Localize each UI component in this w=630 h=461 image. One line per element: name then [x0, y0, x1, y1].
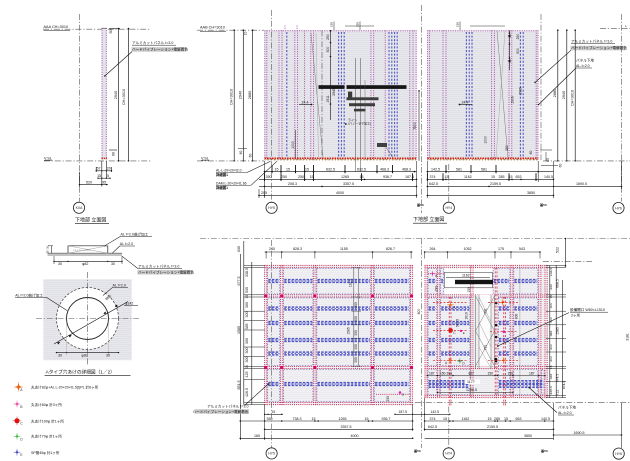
svg-text:300: 300 [549, 356, 553, 362]
svg-text:φ142: φ142 [125, 301, 133, 305]
svg-text:HY5: HY5 [268, 452, 275, 456]
svg-text:192.5: 192.5 [349, 279, 353, 287]
svg-text:285: 285 [494, 417, 500, 421]
svg-text:828.3: 828.3 [293, 247, 302, 251]
svg-text:AL t=2.0: AL t=2.0 [120, 242, 133, 246]
svg-text:HY4: HY4 [445, 452, 452, 456]
svg-text:187.5: 187.5 [405, 175, 414, 179]
svg-text:V.SL: V.SL [44, 156, 52, 160]
svg-text:アルミカットパネル t=3.0: アルミカットパネル t=3.0 [132, 40, 173, 45]
svg-text:AAA CH=3010: AAA CH=3010 [44, 25, 69, 29]
svg-text:15: 15 [488, 417, 492, 421]
svg-text:15: 15 [443, 417, 447, 421]
svg-text:1155: 1155 [340, 247, 348, 251]
svg-text:874.5: 874.5 [562, 381, 566, 390]
svg-text:300: 300 [245, 348, 249, 354]
svg-text:30: 30 [58, 354, 62, 358]
svg-text:1162: 1162 [462, 417, 470, 421]
svg-text:AL-L-20×20×t2.0: AL-L-20×20×t2.0 [216, 169, 242, 173]
svg-text:150: 150 [435, 286, 439, 292]
svg-text:アルミカットパネル t=3.0: アルミカットパネル t=3.0 [207, 403, 248, 408]
svg-text:791: 791 [484, 308, 488, 314]
svg-text:335: 335 [549, 374, 553, 380]
svg-text:30: 30 [111, 262, 115, 266]
svg-text:15: 15 [504, 417, 508, 421]
svg-text:385: 385 [549, 331, 553, 337]
svg-text:7600: 7600 [413, 122, 417, 130]
svg-text:50: 50 [109, 30, 113, 34]
svg-text:1208.5: 1208.5 [466, 388, 477, 392]
svg-text:DAM L-20×20×t1.66: DAM L-20×20×t1.66 [216, 181, 247, 185]
svg-text:4000: 4000 [351, 434, 359, 438]
svg-text:187: 187 [429, 371, 435, 375]
svg-text:パネル下地: パネル下地 [558, 405, 576, 410]
svg-text:468.3: 468.3 [380, 167, 389, 171]
svg-text:250: 250 [386, 396, 390, 402]
svg-text:335: 335 [549, 284, 553, 290]
svg-text:20: 20 [46, 250, 50, 254]
svg-text:187.5: 187.5 [399, 410, 408, 414]
svg-text:1690.5: 1690.5 [576, 182, 587, 186]
svg-text:1265: 1265 [341, 175, 349, 179]
svg-text:2936: 2936 [518, 87, 522, 95]
svg-text:3357.5: 3357.5 [341, 425, 352, 429]
svg-text:15: 15 [245, 295, 249, 299]
svg-text:653: 653 [516, 175, 522, 179]
svg-text:15: 15 [272, 410, 276, 414]
svg-text:CH=3010: CH=3010 [122, 89, 126, 105]
svg-text:642.5: 642.5 [428, 425, 437, 429]
svg-text:2940: 2940 [562, 91, 566, 99]
svg-text:140.5: 140.5 [544, 175, 553, 179]
svg-text:丸あけ82φ+AL L-20×20×t1.5(t)PL 計6: 丸あけ82φ+AL L-20×20×t1.5(t)PL 計6ヶ所 [31, 384, 99, 389]
svg-text:165: 165 [254, 434, 260, 438]
svg-text:30: 30 [58, 262, 62, 266]
svg-text:1610: 1610 [464, 312, 468, 320]
svg-text:5: 5 [107, 174, 109, 178]
svg-text:374: 374 [430, 417, 436, 421]
svg-text:15: 15 [365, 417, 369, 421]
svg-text:632.5: 632.5 [357, 167, 366, 171]
svg-text:Aタイプ穴あけの詳細図（1／2）: Aタイプ穴あけの詳細図（1／2） [46, 368, 115, 375]
svg-text:15: 15 [245, 365, 249, 369]
svg-text:15: 15 [445, 175, 449, 179]
svg-text:KXA: KXA [76, 206, 84, 210]
svg-text:380: 380 [505, 145, 509, 151]
svg-text:208.3: 208.3 [288, 182, 297, 186]
svg-text:ハードバイブレーション+電解着色: ハードバイブレーション+電解着色 [132, 47, 188, 52]
svg-text:642.5: 642.5 [429, 182, 438, 186]
svg-text:2880: 2880 [553, 89, 557, 97]
svg-text:374: 374 [430, 175, 436, 179]
svg-text:712: 712 [555, 390, 559, 396]
svg-text:150: 150 [440, 371, 446, 375]
svg-text:基53: 基53 [416, 202, 424, 207]
svg-text:2880: 2880 [248, 91, 252, 99]
svg-text:205: 205 [261, 191, 267, 195]
svg-text:HY6: HY6 [615, 206, 622, 210]
svg-text:653: 653 [516, 417, 522, 421]
svg-text:基53: 基53 [413, 448, 421, 453]
svg-text:3850: 3850 [524, 434, 532, 438]
svg-text:AAB CH=3010: AAB CH=3010 [200, 26, 225, 30]
svg-text:15: 15 [549, 365, 553, 369]
svg-text:300: 300 [354, 330, 358, 336]
svg-text:150: 150 [508, 371, 514, 375]
svg-text:385: 385 [245, 324, 249, 330]
svg-text:基53: 基53 [539, 202, 547, 207]
svg-text:2940: 2940 [114, 91, 118, 99]
svg-text:250: 250 [281, 175, 287, 179]
svg-text:60: 60 [529, 151, 533, 155]
svg-text:285: 285 [499, 175, 505, 179]
svg-text:ハードバイブレーション+電解着色: ハードバイブレーション+電解着色 [193, 409, 249, 414]
svg-text:2945: 2945 [332, 88, 336, 96]
svg-text:2159.5: 2159.5 [490, 182, 501, 186]
svg-text:150: 150 [488, 371, 494, 375]
svg-text:15: 15 [491, 175, 495, 179]
svg-text:アルミカットパネル t=3.0: アルミカットパネル t=3.0 [138, 264, 179, 269]
svg-text:60: 60 [546, 158, 550, 162]
svg-text:142.5: 142.5 [431, 410, 440, 414]
svg-text:設備開口 W60×L1510: 設備開口 W60×L1510 [570, 307, 605, 312]
svg-text:300: 300 [549, 303, 553, 309]
svg-text:15: 15 [549, 295, 553, 299]
svg-text:851.5: 851.5 [237, 381, 241, 390]
svg-text:1585: 1585 [347, 327, 351, 335]
svg-text:468.3: 468.3 [402, 167, 411, 171]
svg-text:15: 15 [97, 174, 101, 178]
svg-text:60: 60 [112, 152, 116, 156]
svg-text:2159.5: 2159.5 [487, 425, 498, 429]
svg-text:下地部 立面図: 下地部 立面図 [75, 217, 106, 224]
svg-text:詳細図1: 詳細図1 [216, 172, 228, 177]
svg-text:HY4: HY4 [445, 206, 452, 210]
svg-text:3850: 3850 [527, 191, 535, 195]
svg-text:632.5: 632.5 [326, 167, 335, 171]
svg-text:(パノーラマ加工): (パノーラマ加工) [348, 121, 371, 126]
svg-text:CH=3010: CH=3010 [230, 89, 234, 105]
svg-text:133.5: 133.5 [549, 268, 553, 277]
svg-text:詳細図1: 詳細図1 [216, 185, 228, 190]
svg-text:1052: 1052 [464, 247, 472, 251]
svg-text:150: 150 [456, 22, 460, 27]
svg-text:15: 15 [360, 175, 364, 179]
svg-text:1162: 1162 [462, 274, 470, 278]
svg-text:2ヶ所: 2ヶ所 [571, 313, 581, 318]
svg-text:1177: 1177 [467, 380, 475, 384]
svg-text:150: 150 [467, 287, 471, 293]
svg-text:250: 250 [326, 34, 330, 40]
svg-text:581: 581 [481, 167, 487, 171]
svg-text:4000: 4000 [336, 191, 344, 195]
svg-text:581: 581 [456, 167, 462, 171]
svg-text:187: 187 [529, 371, 535, 375]
svg-text:200: 200 [447, 371, 453, 375]
svg-text:15: 15 [310, 175, 314, 179]
svg-text:543: 543 [519, 247, 525, 251]
svg-text:800: 800 [417, 309, 421, 315]
svg-text:24.4: 24.4 [462, 101, 469, 105]
svg-text:1000: 1000 [291, 141, 295, 149]
svg-text:175: 175 [498, 247, 504, 251]
svg-text:791: 791 [484, 345, 488, 351]
svg-text:300: 300 [549, 344, 553, 350]
svg-text:60: 60 [239, 151, 243, 155]
svg-text:V.SL: V.SL [201, 156, 209, 160]
svg-text:1911: 1911 [326, 95, 330, 102]
svg-text:738.3: 738.3 [293, 417, 302, 421]
svg-text:500: 500 [516, 48, 520, 54]
svg-text:AL t=2.0: AL t=2.0 [113, 283, 126, 287]
svg-text:15: 15 [312, 417, 316, 421]
svg-text:300: 300 [245, 302, 249, 308]
svg-text:425: 425 [245, 372, 249, 378]
svg-text:300: 300 [354, 344, 358, 350]
svg-text:AL-t=2.0: AL-t=2.0 [558, 411, 572, 415]
svg-text:300: 300 [354, 357, 358, 363]
svg-text:250: 250 [298, 175, 304, 179]
svg-text:1906: 1906 [510, 96, 514, 104]
svg-text:500: 500 [326, 47, 330, 53]
svg-text:1690.5: 1690.5 [574, 431, 585, 435]
svg-text:140.5: 140.5 [541, 417, 550, 421]
svg-text:390: 390 [266, 175, 272, 179]
svg-text:パネル下地: パネル下地 [576, 57, 594, 62]
svg-text:300: 300 [245, 312, 249, 318]
svg-text:2940: 2940 [239, 91, 243, 99]
svg-text:AL t=2.0曲げ加工: AL t=2.0曲げ加工 [121, 231, 149, 236]
svg-text:1585: 1585 [555, 327, 559, 335]
svg-text:535: 535 [245, 287, 249, 293]
svg-text:丸あけ100φ 計1ヶ所: 丸あけ100φ 計1ヶ所 [31, 418, 64, 423]
svg-text:150: 150 [330, 22, 334, 27]
svg-text:10: 10 [244, 32, 248, 36]
svg-text:339.5: 339.5 [549, 386, 553, 395]
svg-text:264: 264 [430, 247, 436, 251]
svg-text:B: B [402, 393, 404, 397]
svg-text:1585: 1585 [237, 326, 241, 334]
svg-text:φ82: φ82 [82, 354, 88, 358]
svg-text:936.7: 936.7 [383, 175, 392, 179]
svg-text:HY6: HY6 [615, 452, 622, 456]
svg-text:E: E [463, 331, 465, 335]
svg-text:800: 800 [514, 314, 518, 320]
svg-text:SP管45φ 計1ヶ所: SP管45φ 計1ヶ所 [31, 450, 60, 455]
svg-text:300: 300 [245, 357, 249, 363]
svg-text:240: 240 [269, 247, 275, 251]
svg-text:1000: 1000 [483, 136, 487, 144]
svg-text:142.5: 142.5 [431, 167, 440, 171]
svg-text:アルミカットパネル t=3.0: アルミカットパネル t=3.0 [571, 39, 612, 44]
svg-text:3181: 3181 [625, 333, 629, 341]
svg-text:57: 57 [97, 167, 101, 171]
svg-text:520: 520 [86, 180, 92, 184]
svg-text:丸あけ70φ 計1ヶ所: 丸あけ70φ 計1ヶ所 [31, 433, 62, 438]
svg-text:15: 15 [305, 167, 309, 171]
svg-text:60: 60 [248, 154, 252, 158]
svg-text:CH=3010: CH=3010 [571, 90, 575, 106]
svg-text:300: 300 [354, 302, 358, 308]
svg-text:668.5: 668.5 [555, 279, 559, 288]
svg-text:丸あけ60φ 計3ヶ所: 丸あけ60φ 計3ヶ所 [31, 402, 62, 407]
svg-text:3357.5: 3357.5 [343, 182, 354, 186]
svg-text:250: 250 [516, 34, 520, 40]
svg-text:522: 522 [556, 247, 560, 253]
svg-text:1162: 1162 [464, 175, 472, 179]
svg-text:基53: 基53 [540, 448, 548, 453]
svg-text:300: 300 [354, 316, 358, 322]
svg-text:15: 15 [509, 175, 513, 179]
svg-text:ハードバイブレーション+電解着色: ハードバイブレーション+電解着色 [138, 269, 194, 274]
svg-text:HY5: HY5 [268, 206, 275, 210]
svg-text:30: 30 [106, 354, 110, 358]
svg-text:426.5: 426.5 [245, 388, 249, 397]
svg-text:AL-t=2.0: AL-t=2.0 [576, 64, 590, 68]
svg-text:ハードバイブレーション+電解着色: ハードバイブレーション+電解着色 [571, 45, 627, 50]
svg-text:587.5: 587.5 [455, 319, 459, 327]
svg-text:674.5: 674.5 [555, 374, 559, 383]
svg-text:630: 630 [237, 246, 241, 252]
svg-text:677.5: 677.5 [237, 277, 241, 286]
svg-text:1265: 1265 [339, 417, 347, 421]
svg-text:15: 15 [286, 167, 290, 171]
svg-text:下地部 立面図: 下地部 立面図 [413, 216, 444, 223]
svg-text:20: 20 [107, 167, 111, 171]
svg-text:AL t=2.0曲げ加工: AL t=2.0曲げ加工 [15, 292, 43, 297]
svg-text:24.4: 24.4 [302, 101, 309, 105]
svg-text:60: 60 [559, 164, 563, 168]
svg-text:φ82: φ82 [82, 262, 88, 266]
svg-text:15: 15 [275, 167, 279, 171]
svg-text:826.7: 826.7 [386, 247, 395, 251]
svg-text:300: 300 [245, 338, 249, 344]
svg-text:827: 827 [469, 371, 475, 375]
svg-text:936.7: 936.7 [382, 417, 391, 421]
svg-text:95: 95 [102, 180, 106, 184]
svg-text:338.5: 338.5 [245, 268, 249, 277]
svg-text:B: B [435, 274, 437, 278]
